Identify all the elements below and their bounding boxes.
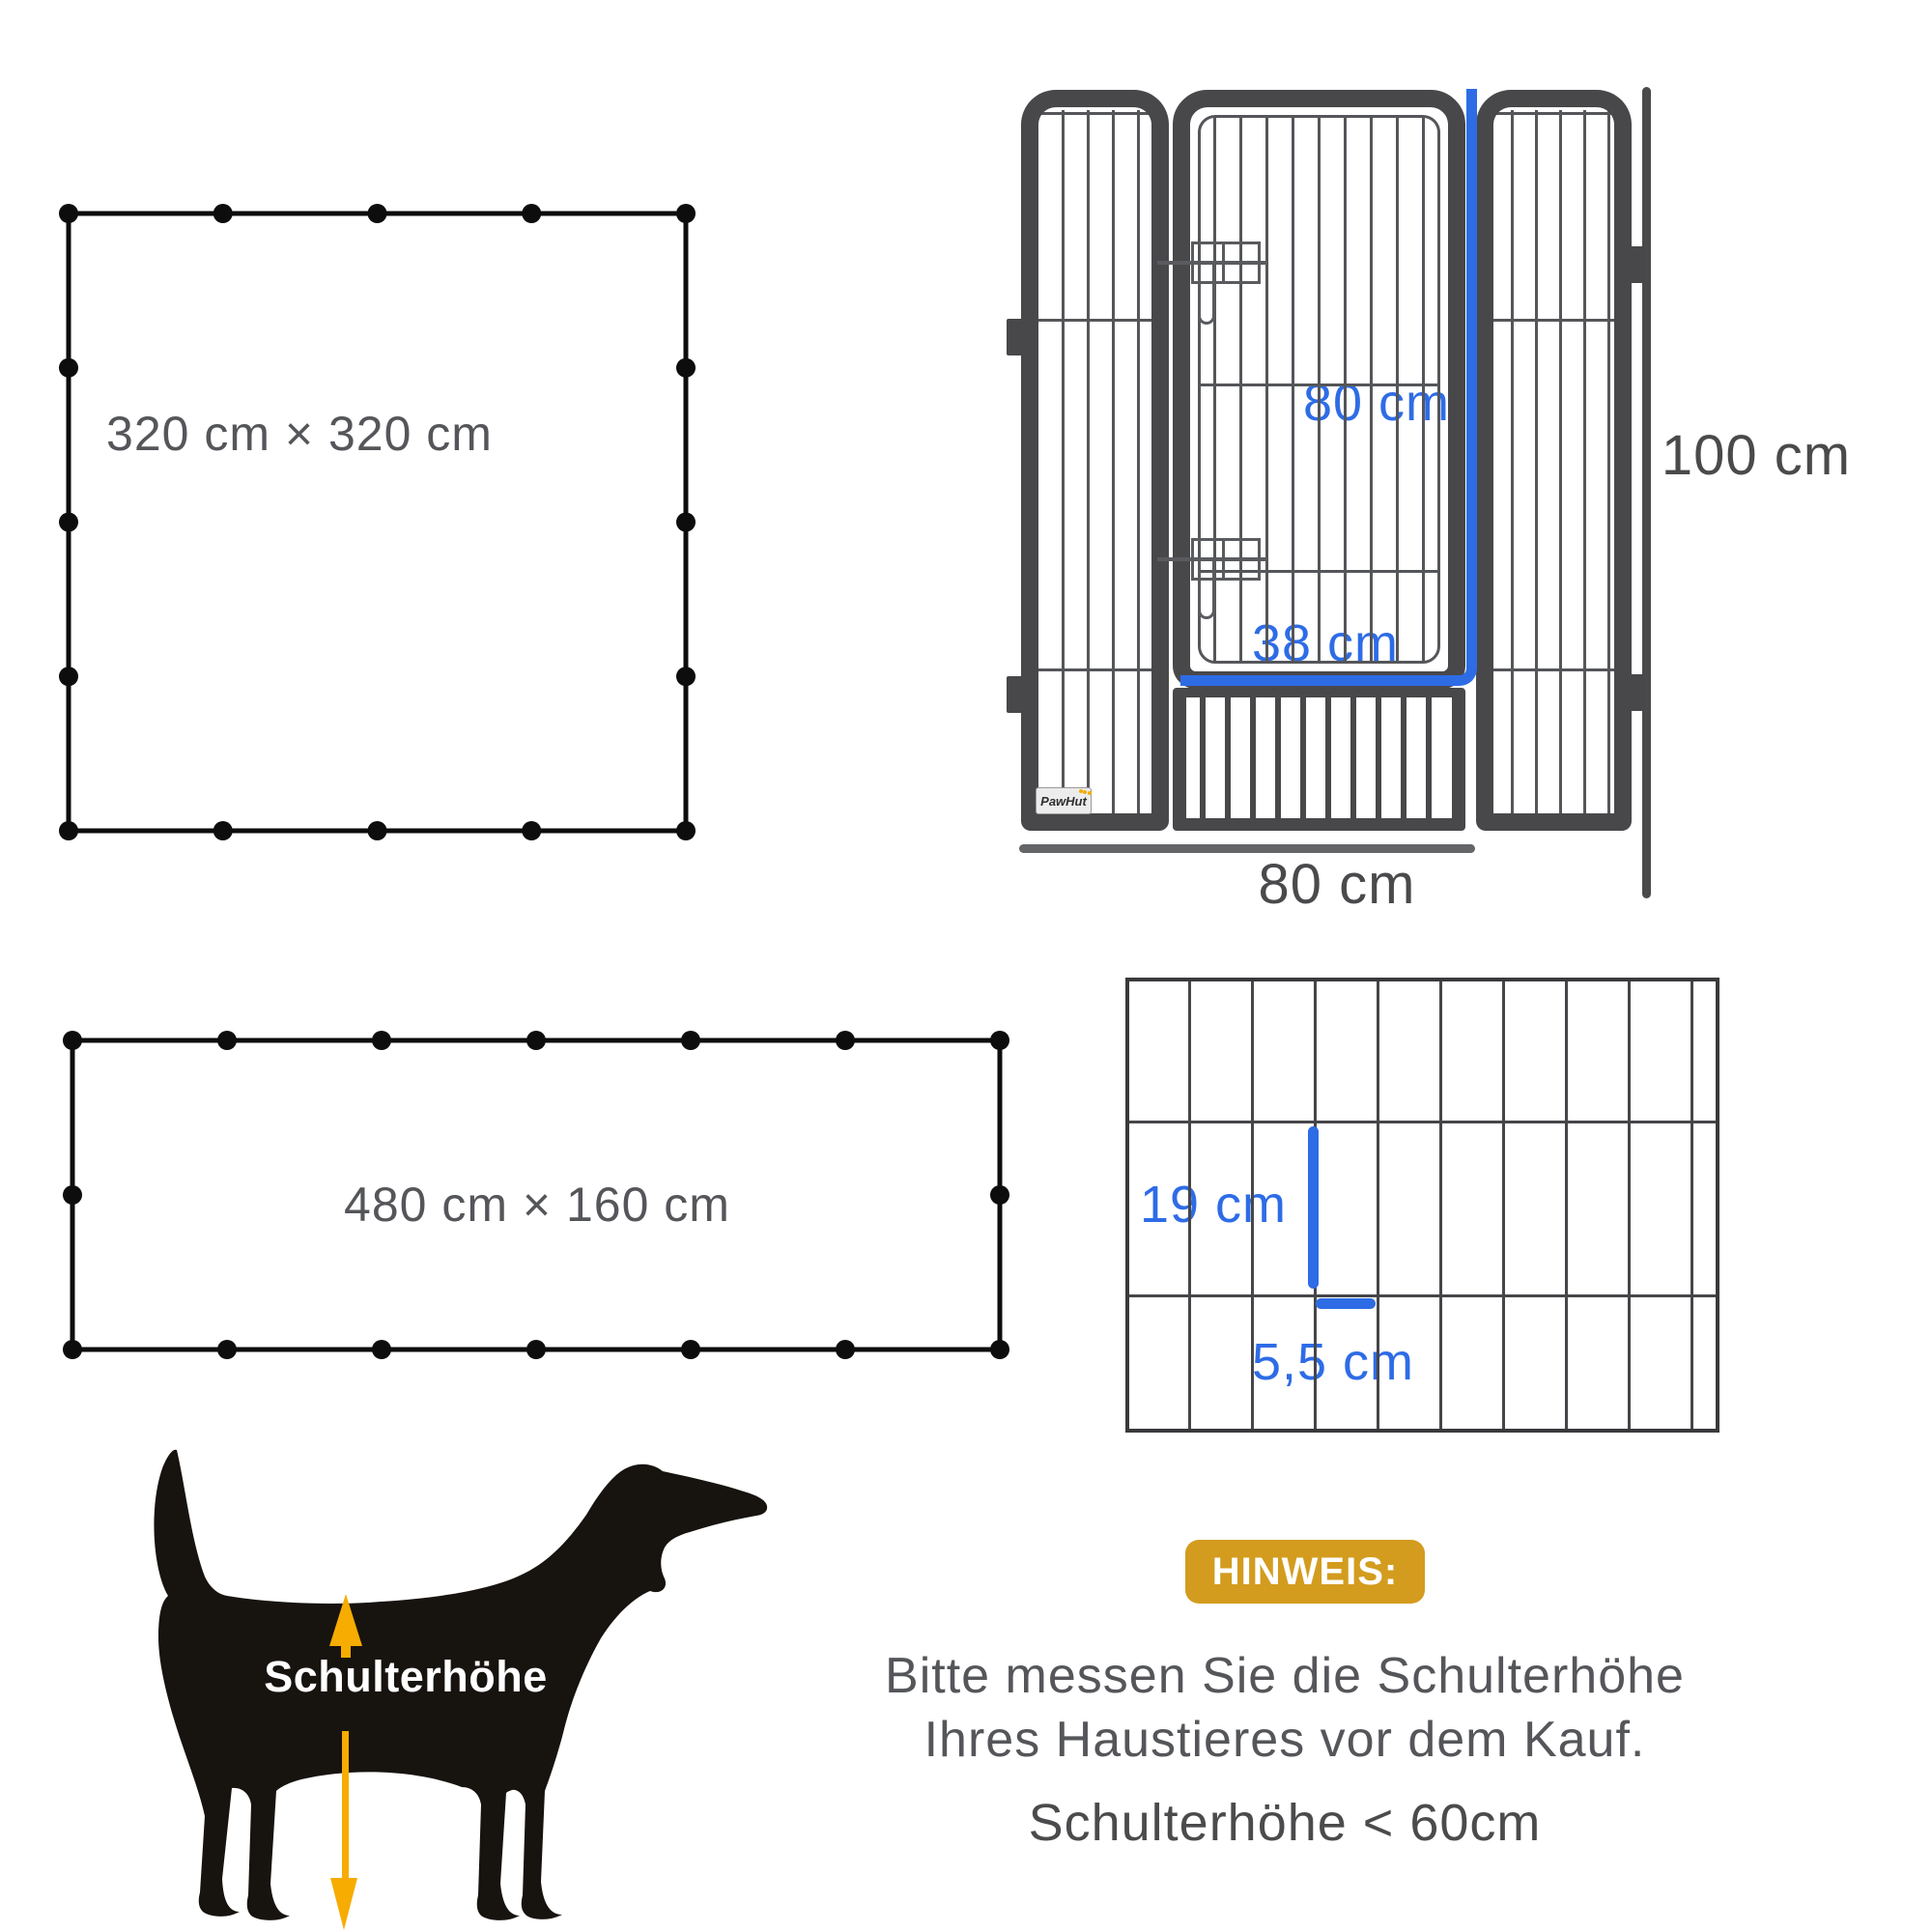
mesh-wire	[1377, 981, 1379, 1429]
note-badge: HINWEIS:	[1185, 1540, 1425, 1604]
square-outline	[69, 213, 686, 831]
rectangle-joint-dot	[681, 1340, 700, 1359]
note-badge-label: HINWEIS:	[1212, 1550, 1398, 1594]
square-joint-dot	[59, 204, 78, 223]
panel-height-label: 100 cm	[1662, 428, 1851, 484]
square-joint-dot	[59, 821, 78, 840]
rectangle-joint-dot	[217, 1340, 237, 1359]
mesh-wire	[1502, 981, 1505, 1429]
rectangle-joint-dot	[836, 1340, 855, 1359]
square-joint-dot	[522, 204, 541, 223]
square-joint-dot	[676, 667, 696, 686]
rectangle-joint-dot	[990, 1340, 1009, 1359]
floor-layouts-svg	[0, 0, 1063, 1410]
square-joint-dot	[676, 513, 696, 532]
rectangle-joint-dot	[63, 1340, 82, 1359]
mesh-wire	[1565, 981, 1568, 1429]
hinge-tab	[1007, 319, 1023, 355]
mesh-wire	[1439, 981, 1442, 1429]
square-joint-dot	[676, 821, 696, 840]
hinge-tab	[1007, 676, 1023, 713]
square-joint-dot	[676, 204, 696, 223]
hinge-tab	[1629, 674, 1645, 711]
rectangle-joint-dot	[681, 1031, 700, 1050]
square-joint-dot	[368, 204, 387, 223]
square-joint-dot	[368, 821, 387, 840]
shoulder-arrow-down-stem	[342, 1731, 349, 1882]
square-joint-dot	[522, 821, 541, 840]
square-joint-dot	[59, 667, 78, 686]
paw-icon	[1083, 790, 1087, 794]
square-joint-dot	[676, 358, 696, 378]
note-line-2: Ihres Haustieres vor dem Kauf.	[802, 1708, 1768, 1772]
square-joint-dot	[213, 204, 233, 223]
rectangle-joint-dot	[372, 1031, 391, 1050]
shoulder-arrow-down-icon	[330, 1878, 357, 1930]
rectangle-outline	[72, 1040, 1000, 1350]
mesh-wire	[1129, 1294, 1716, 1297]
note-line-1: Bitte messen Sie die Schulterhöhe	[802, 1644, 1768, 1708]
infographic-canvas: 320 cm × 320 cm 480 cm × 160 cm PawHut	[0, 0, 1932, 1932]
rectangle-joint-dot	[63, 1031, 82, 1050]
shoulder-height-label: Schulterhöhe	[264, 1652, 548, 1702]
rectangle-joint-dot	[63, 1185, 82, 1205]
rectangle-joint-dot	[990, 1185, 1009, 1205]
mesh-height-measure-line	[1308, 1126, 1319, 1289]
hinge-tab	[1629, 246, 1645, 283]
door-bottom-section-frame	[1173, 688, 1465, 831]
mesh-wire	[1628, 981, 1631, 1429]
rectangle-joint-dot	[217, 1031, 237, 1050]
left-panel-frame	[1021, 90, 1169, 831]
right-panel-frame	[1476, 90, 1632, 831]
door-measure-line	[1180, 89, 1477, 686]
square-joint-dot	[59, 358, 78, 378]
rectangle-joint-dot	[372, 1340, 391, 1359]
rectangle-joint-dot	[526, 1340, 546, 1359]
mesh-wire	[1129, 1121, 1716, 1123]
rectangle-joint-dot	[526, 1031, 546, 1050]
mesh-wire	[1690, 981, 1693, 1429]
width-measure-line	[1019, 844, 1475, 853]
brand-logo: PawHut	[1036, 787, 1092, 814]
square-joint-dot	[213, 821, 233, 840]
mesh-wire	[1188, 981, 1191, 1429]
rectangle-joint-dot	[836, 1031, 855, 1050]
rectangle-joint-dot	[990, 1031, 1009, 1050]
mesh-wire	[1251, 981, 1254, 1429]
brand-logo-text: PawHut	[1040, 794, 1087, 809]
height-measure-line	[1642, 87, 1651, 898]
panel-width-label: 80 cm	[1259, 857, 1416, 913]
square-joint-dot	[59, 513, 78, 532]
mesh-width-measure-line	[1316, 1298, 1376, 1309]
note-line-3: Schulterhöhe < 60cm	[802, 1793, 1768, 1853]
